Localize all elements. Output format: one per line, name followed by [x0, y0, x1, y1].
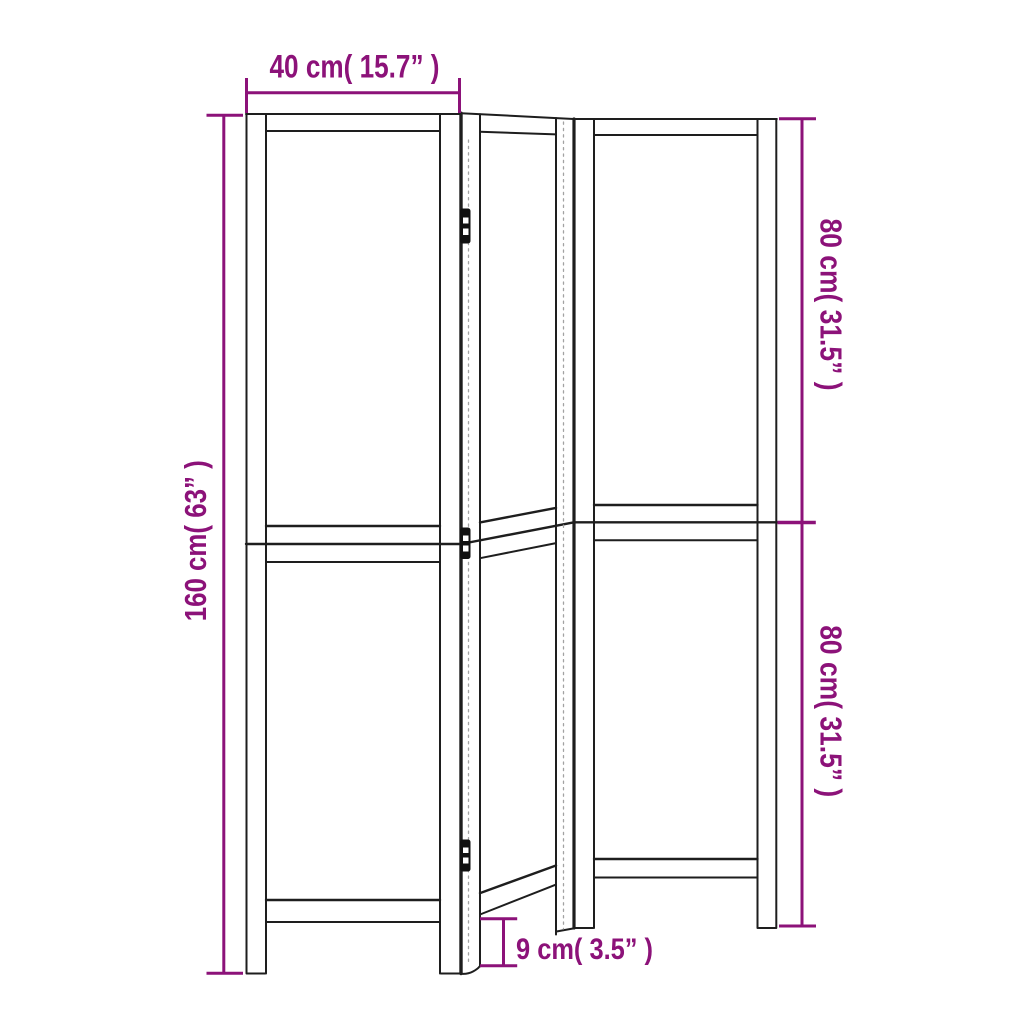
svg-text:80 cm( 31.5” ): 80 cm( 31.5” ): [814, 625, 849, 797]
svg-text:160 cm( 63” ): 160 cm( 63” ): [178, 460, 213, 621]
svg-text:9 cm( 3.5” ): 9 cm( 3.5” ): [516, 933, 653, 966]
svg-text:40 cm( 15.7” ): 40 cm( 15.7” ): [270, 49, 440, 85]
svg-text:80 cm( 31.5” ): 80 cm( 31.5” ): [814, 219, 849, 391]
